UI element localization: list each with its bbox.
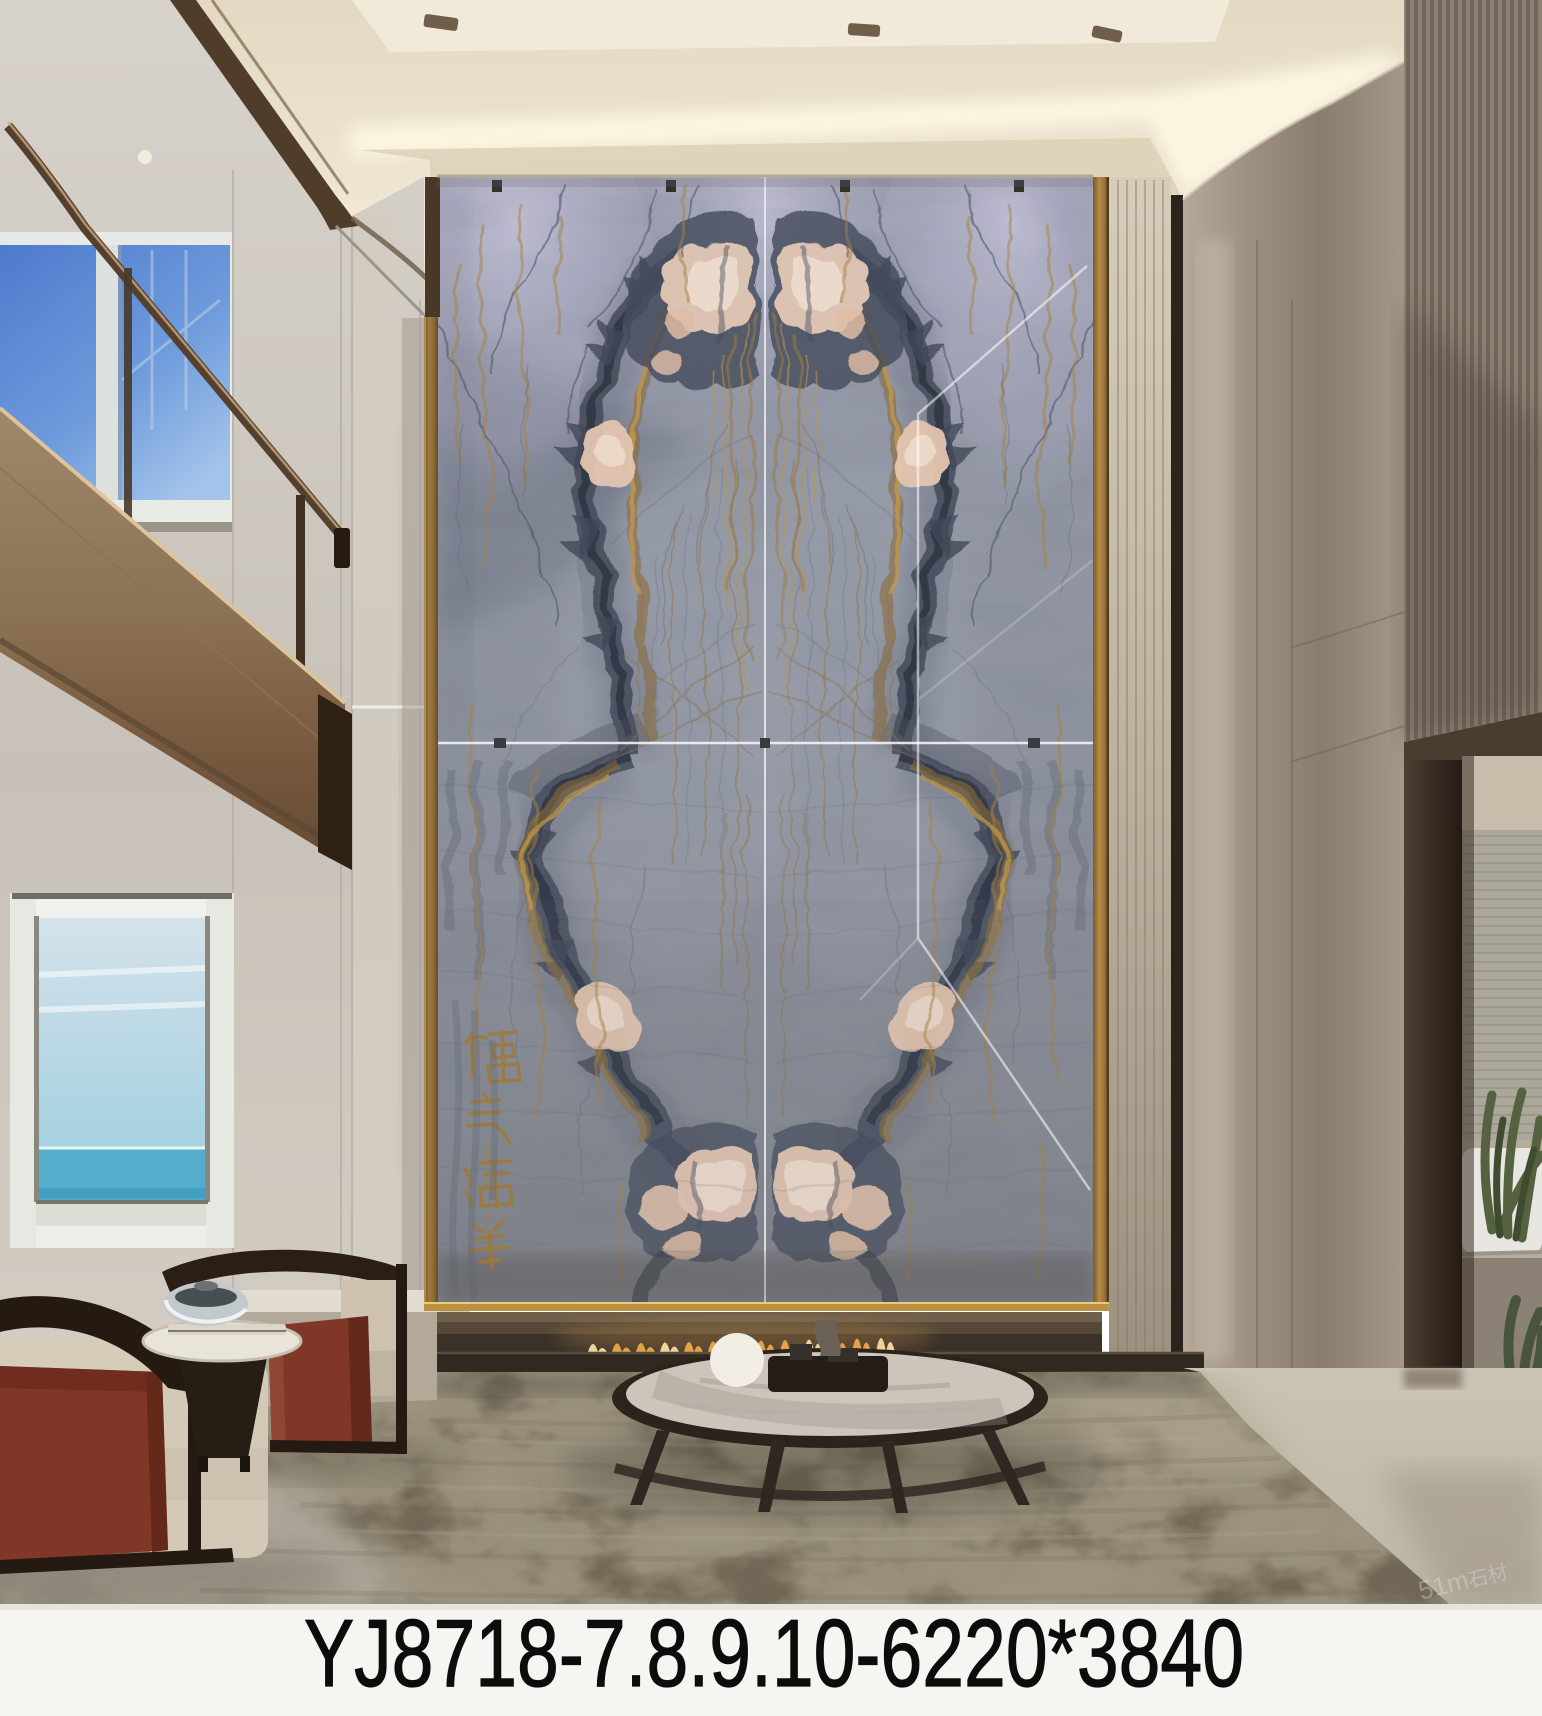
svg-text:YJ8718-7.8.9.10-6220*3840: YJ8718-7.8.9.10-6220*3840	[304, 1600, 1244, 1707]
